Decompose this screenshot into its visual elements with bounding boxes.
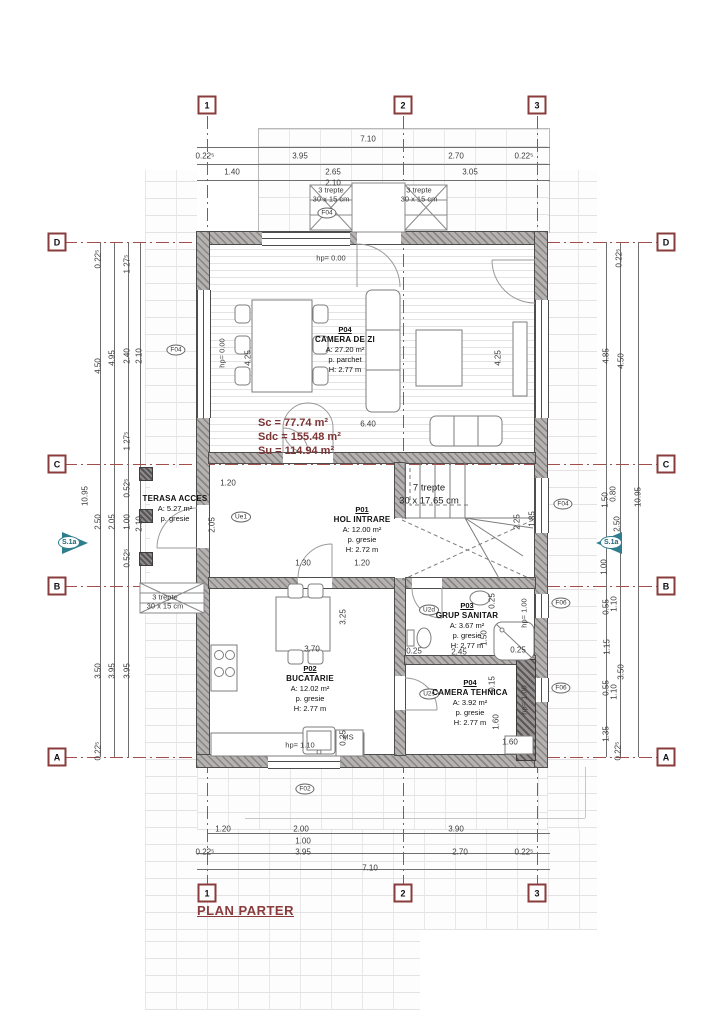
dimension-label: 2.05 (108, 514, 117, 530)
annotation-layer: 7.100.22⁵3.952.700.22⁵1.402.653.052.101.… (0, 0, 723, 1023)
dimension-label: 4.85 (602, 348, 611, 364)
annotation-label: 3 trepte (406, 186, 431, 195)
drawing-title: PLAN PARTER (197, 903, 294, 918)
axis-marker-A: A (657, 748, 676, 767)
dimension-label: 3.25 (339, 609, 348, 625)
dimension-label: 2.05 (208, 517, 217, 533)
dimension-label: 6.40 (360, 420, 376, 429)
dimension-label: 7.10 (360, 135, 376, 144)
dimension-label: 0.22⁵ (515, 848, 534, 857)
dimension-label: 1.30 (295, 559, 311, 568)
area-summary: Sc = 77.74 m² Sdc = 155.48 m² Su = 114.9… (258, 416, 341, 458)
dimension-label: 3.95 (123, 663, 132, 679)
dimension-label: 0.52⁵ (123, 549, 132, 568)
dimension-label: 0.25 (510, 646, 526, 655)
axis-marker-1: 1 (198, 884, 217, 903)
dimension-label: 7.10 (362, 864, 378, 873)
dimension-label: 3.05 (462, 168, 478, 177)
room-label-P02: P02BUCATARIEA: 12.02 m²p. gresieH: 2.77 … (286, 664, 334, 713)
annotation-label: 30 x 15 cm (313, 195, 350, 204)
axis-marker-B: B (657, 577, 676, 596)
axis-marker-2: 2 (394, 96, 413, 115)
axis-marker-C: C (48, 455, 67, 474)
room-label-terasa: TERASA ACCES A: 5.27 m² p. gresie (143, 494, 208, 524)
annotation-label: 3 trepte (152, 593, 177, 602)
opening-tag-F06: F06 (551, 683, 570, 694)
stair-note: 30 x 17.65 cm (399, 496, 459, 507)
annotation-label: MS (342, 733, 353, 742)
room-label-P03: P03GRUP SANITARA: 3.67 m²p. gresieH: 2.7… (436, 601, 499, 650)
annotation-label: hp= 0.00 (316, 254, 345, 263)
dimension-label: 0.22⁵ (615, 249, 624, 268)
dimension-label: 10.95 (634, 487, 643, 507)
axis-marker-A: A (48, 748, 67, 767)
dimension-label: 0.22⁵ (196, 152, 215, 161)
axis-marker-B: B (48, 577, 67, 596)
dimension-label: 2.10 (135, 348, 144, 364)
dimension-label: 0.80 (609, 486, 618, 502)
dimension-label: 0.52⁵ (123, 479, 132, 498)
floor-plan-canvas: 7.100.22⁵3.952.700.22⁵1.402.653.052.101.… (0, 0, 723, 1023)
dimension-label: 2.00 (293, 825, 309, 834)
axis-marker-2: 2 (394, 884, 413, 903)
dimension-label: 1.40 (224, 168, 240, 177)
room-label-P04: P04CAMERA DE ZIA: 27.20 m²p. parchetH: 2… (315, 325, 375, 374)
dimension-label: 3.95 (108, 663, 117, 679)
annotation-label: hp= 0.00 (218, 338, 227, 367)
dimension-label: 0.22⁵ (515, 152, 534, 161)
dimension-label: 2.50 (613, 516, 622, 532)
dimension-label: 3.95 (295, 848, 311, 857)
dimension-label: 1.27⁵ (123, 432, 132, 451)
dimension-label: 4.50 (94, 358, 103, 374)
annotation-label: hp= 1.00 (520, 598, 529, 627)
annotation-label: 30 x 15 cm (147, 602, 184, 611)
dimension-label: 2.65 (325, 168, 341, 177)
annotation-label: 30 x 15 cm (401, 195, 438, 204)
stair-note: 7 trepte (413, 483, 445, 494)
annotation-label: hp= 1.10 (285, 741, 314, 750)
dimension-label: 0.25 (406, 647, 422, 656)
dimension-label: 4.50 (617, 353, 626, 369)
opening-tag-F06: F06 (551, 598, 570, 609)
dimension-label: 1.27⁵ (123, 255, 132, 274)
dimension-label: 0.22⁵ (196, 848, 215, 857)
dimension-label: 1.20 (220, 479, 236, 488)
dimension-label: 1.60 (502, 738, 518, 747)
dimension-label: 1.10 (610, 684, 619, 700)
dimension-label: 1.00 (600, 559, 609, 575)
axis-marker-1: 1 (198, 96, 217, 115)
dimension-label: 1.20 (354, 559, 370, 568)
opening-tag-F04: F04 (166, 345, 185, 356)
dimension-label: 3.90 (448, 825, 464, 834)
total-built-area: Sdc = 155.48 m² (258, 430, 341, 444)
annotation-label: 3 trepte (318, 186, 343, 195)
dimension-label: 3.50 (94, 663, 103, 679)
dimension-label: 0.22⁵ (94, 250, 103, 269)
dimension-label: 1.35 (602, 726, 611, 742)
dimension-label: 3.70 (304, 645, 320, 654)
dimension-label: 0.22⁵ (614, 742, 623, 761)
dimension-label: 1.20 (215, 825, 231, 834)
dimension-label: 2.70 (448, 152, 464, 161)
dimension-label: 3.95 (292, 152, 308, 161)
dimension-label: 2.70 (452, 848, 468, 857)
dimension-label: 4.25 (244, 350, 253, 366)
axis-marker-3: 3 (528, 96, 547, 115)
opening-tag-F04: F04 (553, 499, 572, 510)
dimension-label: 2.40 (123, 348, 132, 364)
room-label-P04: P04CAMERA TEHNICAA: 3.92 m²p. gresieH: 2… (432, 678, 507, 727)
usable-area: Su = 114.94 m² (258, 444, 341, 458)
opening-tag-F02: F02 (295, 784, 314, 795)
dimension-label: 3.50 (617, 664, 626, 680)
dimension-label: 2.25 (513, 514, 522, 530)
room-label-P01: P01HOL INTRAREA: 12.00 m²p. gresieH: 2.7… (334, 505, 391, 554)
axis-marker-C: C (657, 455, 676, 474)
dimension-label: 1.85 (528, 511, 537, 527)
dimension-label: 2.50 (94, 514, 103, 530)
axis-marker-D: D (48, 233, 67, 252)
dimension-label: 1.00 (295, 837, 311, 846)
dimension-label: 1.00 (123, 514, 132, 530)
built-area: Sc = 77.74 m² (258, 416, 341, 430)
opening-tag-F04: F04 (317, 208, 336, 219)
dimension-label: 1.15 (603, 639, 612, 655)
dimension-label: 1.10 (610, 596, 619, 612)
annotation-label: hp= 1.00 (520, 685, 529, 714)
dimension-label: 0.22⁵ (94, 742, 103, 761)
opening-tag-Ue1: Ue1 (231, 512, 251, 523)
dimension-label: 10.95 (81, 486, 90, 506)
dimension-label: 4.25 (494, 350, 503, 366)
axis-marker-D: D (657, 233, 676, 252)
dimension-label: 4.95 (108, 350, 117, 366)
axis-marker-3: 3 (528, 884, 547, 903)
